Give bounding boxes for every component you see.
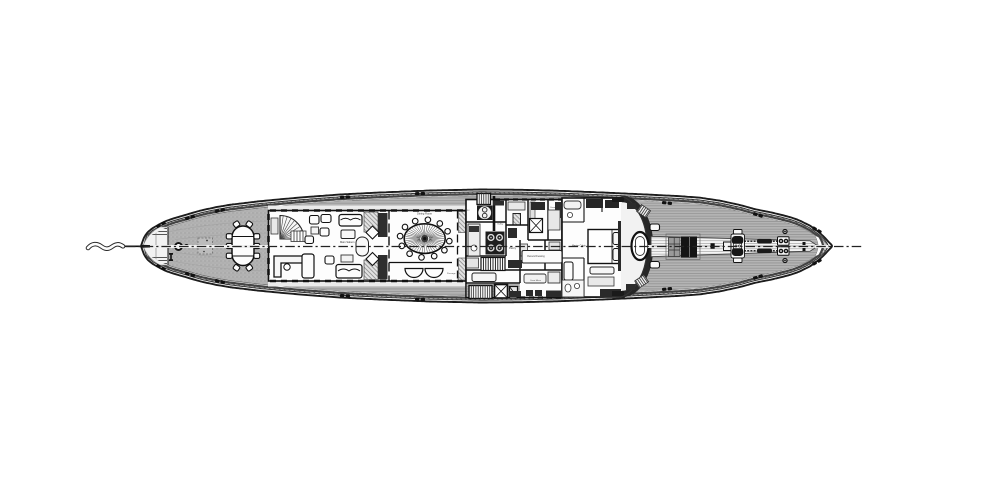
svg-text:Dining Room: Dining Room xyxy=(417,212,432,216)
svg-text:Crew Mess: Crew Mess xyxy=(530,279,542,282)
svg-text:Main Saloon: Main Saloon xyxy=(340,240,355,244)
svg-text:Crew: Crew xyxy=(550,206,556,209)
svg-text:Pantry: Pantry xyxy=(509,247,517,250)
svg-text:Galley: Galley xyxy=(497,224,504,226)
svg-text:Passage: Passage xyxy=(447,273,456,275)
svg-text:WC: WC xyxy=(466,210,470,212)
svg-text:Owners Dressing: Owners Dressing xyxy=(527,255,545,258)
